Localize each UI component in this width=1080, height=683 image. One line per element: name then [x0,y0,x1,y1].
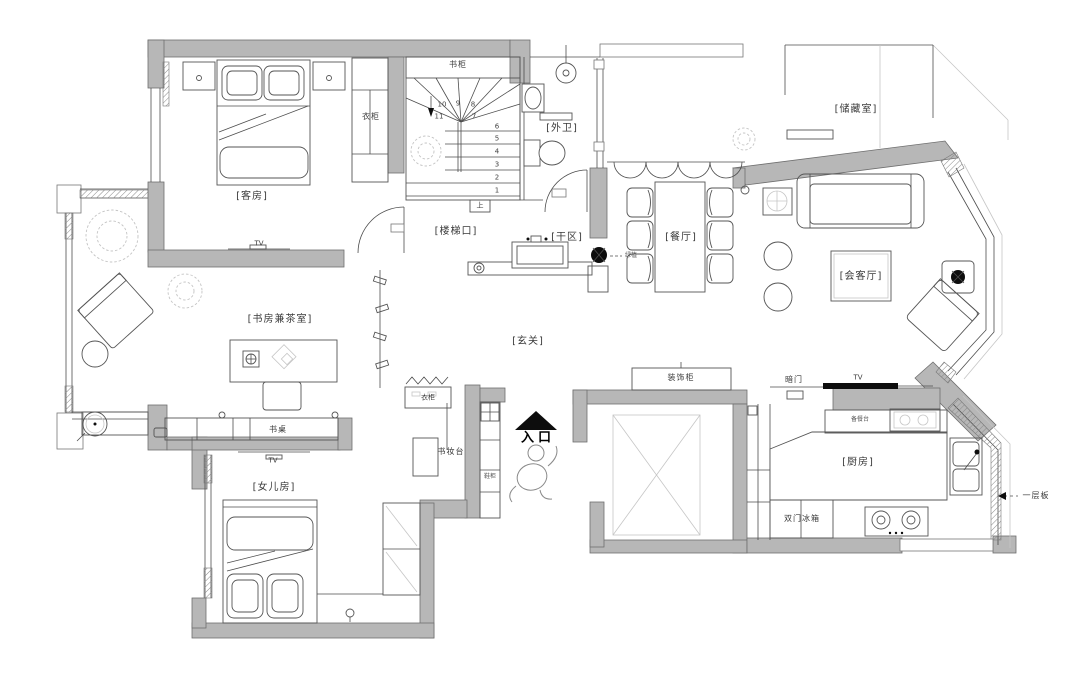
tv-unit [823,383,898,389]
pouf-stool [764,283,792,311]
stairs-plant-icon [411,136,441,166]
sliding-partition [373,270,388,388]
sofa [797,174,924,228]
stair-num-9: 9 [456,101,460,108]
stair-num-5: 5 [495,136,499,143]
kitchen-sink [950,438,982,495]
up-label: 上 [477,203,484,210]
armchair [78,273,154,349]
deco-cabinet-label: 装饰柜 [668,374,695,382]
floor-plan: .wall{fill:#b7b7b7;stroke:#6f6f6f;stroke… [0,0,1080,683]
entry-wardrobe [405,377,451,408]
dining-label: [餐厅] [665,233,697,243]
square-side-table [763,188,792,215]
tv-label-living: TV [853,375,862,382]
daughter-room-label: [女儿房] [253,483,296,493]
walls [148,40,1016,638]
bath-shelf [540,113,572,120]
guest-room [183,58,388,249]
round-stool [82,341,108,367]
daughter-bed [223,500,317,623]
counter-appliance [890,409,940,431]
guest-room-label: [客房] [236,192,268,202]
shower-icon [556,45,576,83]
folding-door-arcs [614,162,742,178]
double-bed [217,60,310,185]
stair-num-11: 11 [435,114,444,121]
daughter-room [223,452,420,623]
guest-wardrobe-label: 衣柜 [362,113,380,121]
tag-box [391,224,404,232]
stair-num-10: 10 [438,102,447,109]
stair-num-6: 6 [495,124,499,131]
vanity-label: 书妆台 [438,448,465,456]
stair-hall-label: [楼梯口] [435,227,478,237]
dry-area-label: [干区] [551,233,583,243]
shoe-cabinet-label: 鞋柜 [484,474,496,480]
storage-label: [储藏室] [835,105,878,115]
entry-wardrobe-label: 衣柜 [421,395,435,402]
stair-num-8: 8 [471,102,475,109]
stair-num-3: 3 [495,162,499,169]
windows [57,44,1010,598]
serving-counter [825,410,947,433]
tv-label-daughter: TV [268,458,277,465]
toilet-icon [524,140,565,166]
tea-table [230,340,337,382]
dry-area [468,236,622,292]
outer-bath-label: [外卫] [546,124,578,134]
shelf-board-label: 一层板 [1023,492,1050,500]
dining-room [607,162,745,292]
foyer-label: [玄关] [512,337,544,347]
stairs-down-arrow [428,96,434,117]
tv-label-guest: TV [254,241,263,248]
shoe-cabinet [480,402,500,518]
stair-num-4: 4 [495,149,499,156]
hidden-door-tag [787,391,803,399]
nightstand [183,62,215,90]
vanity-desk [413,438,438,476]
plant-side-table [942,261,974,293]
stair-num-7: 7 [472,114,476,121]
serving-counter-label: 备餐台 [851,417,869,423]
study-label: [书房兼茶室] [248,315,313,325]
hidden-door-label: 暗门 [785,376,803,384]
reception-label: [会客厅] [840,272,883,282]
tag-box [552,189,566,197]
plant-note-label: 绿植 [625,253,637,259]
gas-stove [865,507,928,536]
tea-bench [263,382,301,410]
pouf-stool [764,242,792,270]
bath-sink-icon [522,84,544,112]
entrance-label: 入口 [521,432,555,445]
stair-num-1: 1 [495,188,499,195]
nightstand [313,62,345,90]
study-desk [165,412,338,440]
plant-pot-icon [591,247,607,263]
kitchen-label: [厨房] [842,458,874,468]
stair-num-2: 2 [495,175,499,182]
daughter-wardrobe [383,503,420,595]
person-figure [510,445,557,502]
entrance-arrow-icon [515,411,557,430]
desk-label: 书桌 [269,426,287,434]
bookcase-label: 书柜 [449,61,467,69]
fridge-label: 双门冰箱 [784,515,820,523]
